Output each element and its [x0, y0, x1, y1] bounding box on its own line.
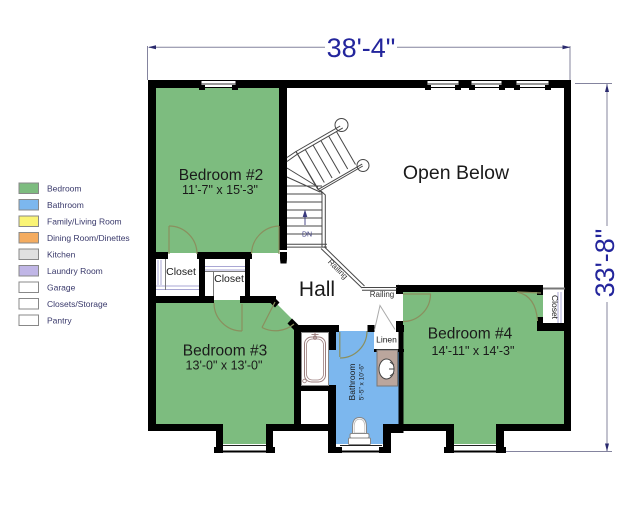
svg-text:Bathroom: Bathroom [47, 200, 84, 210]
svg-text:13'-0" x 13'-0": 13'-0" x 13'-0" [186, 359, 263, 373]
svg-text:Bathroom: Bathroom [347, 364, 357, 401]
svg-text:5'-5" x 10'-6": 5'-5" x 10'-6" [359, 363, 366, 400]
svg-text:Linen: Linen [376, 335, 397, 345]
svg-text:11'-7" x 15'-3": 11'-7" x 15'-3" [182, 183, 258, 197]
svg-text:Closet: Closet [166, 266, 196, 278]
svg-text:Laundry Room: Laundry Room [47, 266, 103, 276]
svg-text:Closets/Storage: Closets/Storage [47, 299, 108, 309]
svg-text:14'-11" x 14'-3": 14'-11" x 14'-3" [432, 344, 515, 358]
svg-text:33'-8": 33'-8" [590, 229, 620, 298]
svg-text:Family/Living Room: Family/Living Room [47, 217, 122, 227]
svg-text:Open Below: Open Below [403, 162, 510, 184]
svg-text:Closet: Closet [550, 295, 560, 320]
svg-text:Hall: Hall [299, 278, 335, 301]
svg-text:Bedroom #2: Bedroom #2 [179, 167, 263, 184]
svg-text:Closet: Closet [214, 273, 244, 285]
svg-text:Bedroom #4: Bedroom #4 [428, 326, 513, 343]
svg-text:DN: DN [302, 232, 312, 239]
svg-text:Kitchen: Kitchen [47, 250, 76, 260]
svg-text:Dining Room/Dinettes: Dining Room/Dinettes [47, 233, 130, 243]
svg-text:Railing: Railing [370, 290, 394, 299]
svg-text:Bedroom: Bedroom [47, 184, 82, 194]
svg-text:Pantry: Pantry [47, 316, 72, 326]
svg-text:Bedroom #3: Bedroom #3 [183, 343, 267, 360]
svg-text:Garage: Garage [47, 283, 76, 293]
svg-text:38'-4": 38'-4" [327, 33, 396, 63]
